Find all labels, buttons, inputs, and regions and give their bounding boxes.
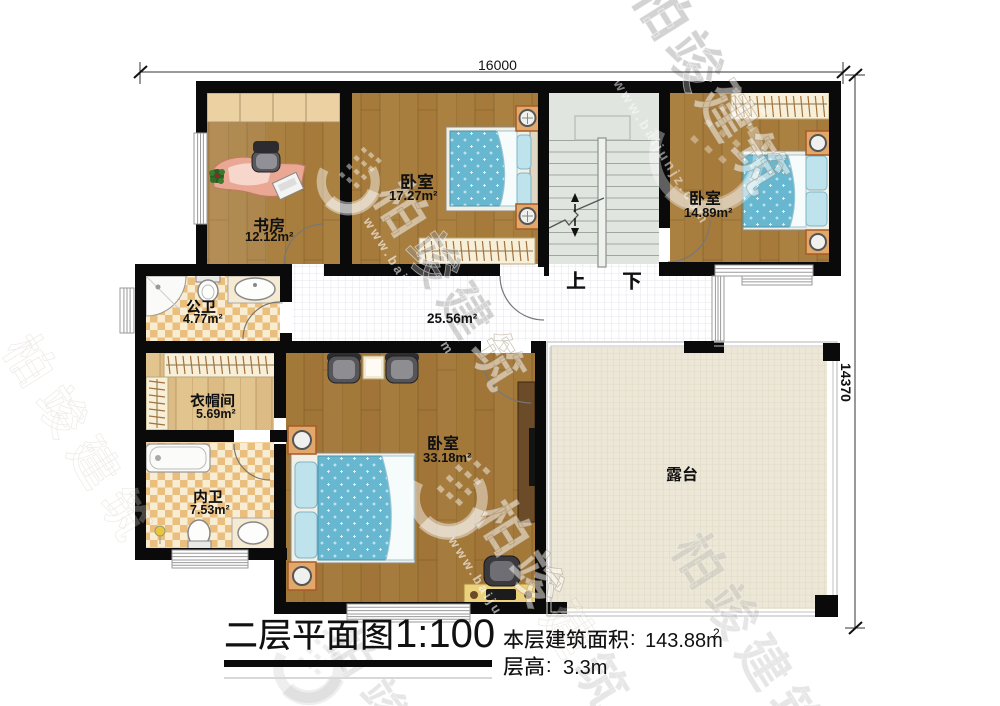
svg-text:2: 2 — [713, 626, 720, 640]
svg-text:17.27m²: 17.27m² — [389, 188, 438, 203]
svg-text:1:100: 1:100 — [395, 612, 495, 656]
svg-text:7.53m²: 7.53m² — [190, 503, 230, 517]
svg-text::: : — [630, 628, 636, 650]
svg-text:14.89m²: 14.89m² — [684, 205, 733, 220]
svg-text:143.88m: 143.88m — [645, 630, 723, 652]
svg-text:25.56m²: 25.56m² — [427, 311, 478, 326]
svg-text:33.18m²: 33.18m² — [423, 450, 472, 465]
svg-text:4.77m²: 4.77m² — [183, 312, 223, 326]
svg-text:12.12m²: 12.12m² — [245, 229, 294, 244]
svg-text:3.3m: 3.3m — [563, 657, 607, 679]
svg-text::: : — [546, 655, 552, 677]
svg-text:16000: 16000 — [478, 57, 517, 73]
svg-text:14370: 14370 — [838, 363, 854, 402]
svg-text:5.69m²: 5.69m² — [196, 407, 236, 421]
